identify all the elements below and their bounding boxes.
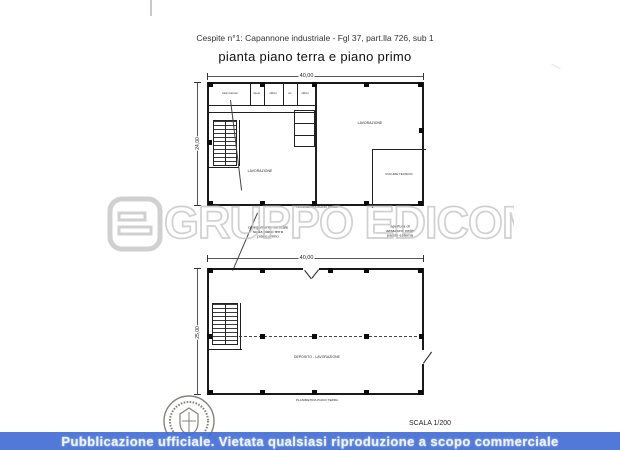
volume-room-label: VOLUME TECNICO [382, 173, 416, 176]
column [207, 334, 212, 339]
page-title: pianta piano terra e piano primo [175, 49, 455, 64]
dim-line-top-lower [207, 258, 424, 259]
room-label: ripost. [249, 92, 264, 95]
column [207, 140, 212, 145]
header-reference: Cespite n°1: Capannone industriale - Fgl… [175, 33, 455, 43]
column [418, 82, 423, 87]
dim-tick [207, 255, 208, 262]
room-label: sala riunioni [222, 92, 238, 95]
column [364, 82, 369, 87]
scanned-plan-page: Cespite n°1: Capannone industriale - Fgl… [0, 0, 620, 450]
column [260, 334, 265, 339]
scan-artifact [150, 0, 152, 16]
wall [209, 167, 239, 168]
room-label: wc [282, 92, 297, 95]
column [208, 268, 213, 273]
scan-artifact [551, 64, 560, 70]
lower-plan-caption: PLANIMETRIA PIANO TERRA [296, 399, 338, 402]
wall [295, 135, 314, 136]
column [312, 390, 317, 395]
document-header: Cespite n°1: Capannone industriale - Fgl… [175, 33, 455, 64]
footer-text: Pubblicazione ufficiale. Vietata qualsia… [61, 434, 558, 449]
room-label: ufficio [265, 92, 280, 95]
dim-width-upper: 40,00 [299, 72, 315, 78]
dim-tick [207, 73, 208, 80]
room-label: ufficio [297, 92, 312, 95]
zone-label-deposito: DEPOSITO - LAVORAZIONE [279, 356, 356, 359]
wall [209, 349, 242, 350]
column [364, 268, 369, 273]
zone-label-lavorazione-right: LAVORAZIONE [351, 122, 389, 125]
dim-width-lower: 40,00 [299, 254, 315, 260]
column [328, 268, 333, 273]
column [364, 334, 369, 339]
column [419, 334, 424, 339]
wall [295, 123, 314, 124]
wall [239, 120, 240, 166]
dim-tick [423, 255, 424, 262]
column [260, 82, 265, 87]
wall [209, 105, 315, 106]
dim-tick [423, 73, 424, 80]
column [208, 82, 213, 87]
column [418, 390, 423, 395]
stairs-lower [212, 303, 238, 345]
wc-block [294, 110, 315, 147]
column [260, 390, 265, 395]
lower-floor-plan: DEPOSITO - LAVORAZIONE [207, 268, 424, 395]
wall [240, 303, 241, 349]
wall-divider [315, 84, 317, 204]
edicom-logo [106, 196, 164, 252]
watermark-text: GRUPPO EDICOM [164, 197, 514, 248]
column [364, 390, 369, 395]
column [312, 82, 317, 87]
column [419, 128, 424, 133]
column [418, 268, 423, 273]
upper-floor-plan: sala riunioni ripost. ufficio wc ufficio… [207, 82, 424, 206]
dim-height-lower: 25,00 [195, 325, 201, 340]
dim-tick [194, 268, 201, 269]
footer-watermark-bar: Pubblicazione ufficiale. Vietata qualsia… [0, 432, 620, 450]
dim-height-upper: 24,00 [195, 136, 201, 151]
column [312, 334, 317, 339]
dim-line-top-upper [207, 76, 424, 77]
watermark-text-svg: GRUPPO EDICOM [164, 194, 514, 254]
column [260, 268, 265, 273]
dim-tick [194, 82, 201, 83]
zone-label-lavorazione-left: LAVORAZIONE [241, 170, 279, 173]
scale-label: SCALA 1/200 [398, 420, 462, 427]
